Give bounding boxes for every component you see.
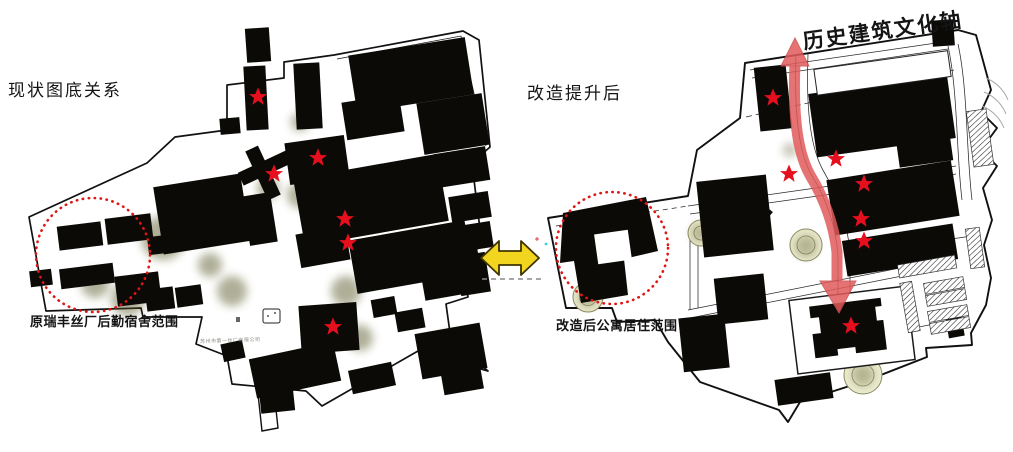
sparkle-cross (535, 237, 539, 241)
right-plan-caption: 改造后公寓居住范围 (556, 315, 678, 334)
figure-canvas: 现状图底关系 改造提升后 历史建筑文化轴 原瑞丰丝厂后勤宿舍范围 改造后公寓居住… (0, 0, 1013, 452)
l-building-courtyard (594, 230, 632, 264)
legend-mark (236, 317, 240, 322)
site-plans-svg (0, 0, 1013, 452)
left-plan-caption: 原瑞丰丝厂后勤宿舍范围 (30, 311, 179, 330)
legend-box (263, 309, 280, 323)
sparkle-dot (545, 243, 548, 246)
left-plan-title: 现状图底关系 (8, 76, 122, 101)
right-plan-title: 改造提升后 (527, 79, 622, 104)
